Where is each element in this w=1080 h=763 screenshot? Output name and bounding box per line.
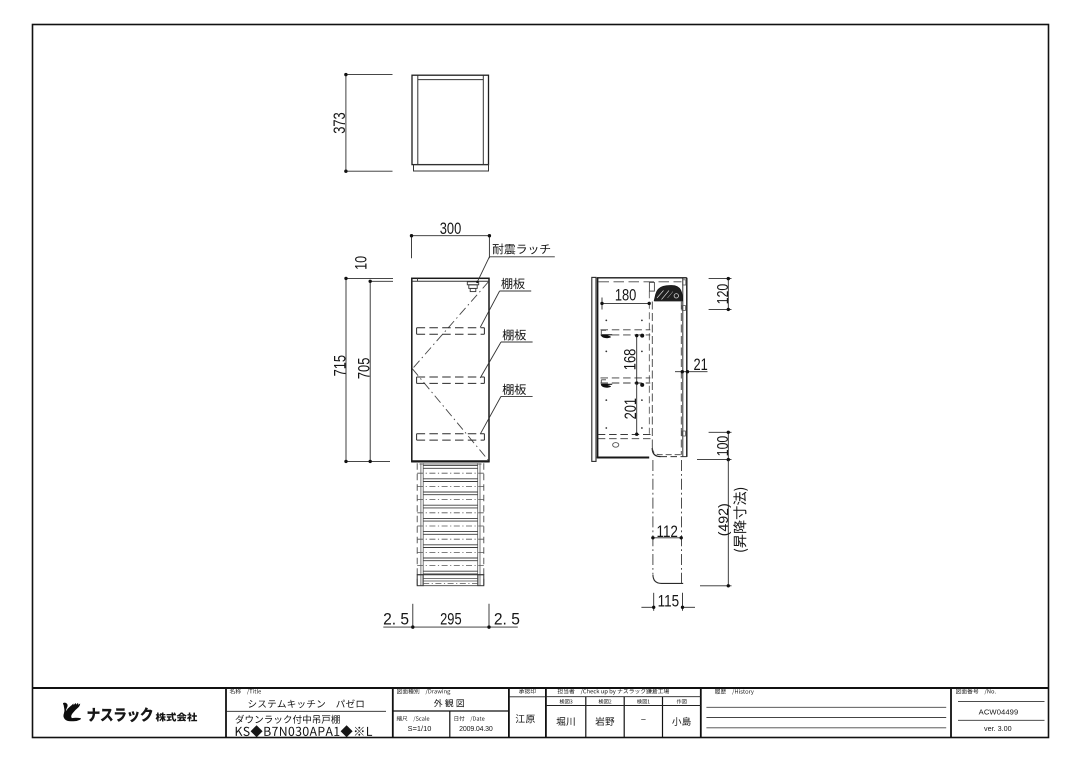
svg-text:S=1/10: S=1/10 bbox=[408, 724, 432, 733]
svg-text:180: 180 bbox=[615, 286, 637, 305]
svg-text:705: 705 bbox=[354, 358, 373, 380]
svg-text:(492): (492) bbox=[715, 503, 731, 536]
svg-text:21: 21 bbox=[694, 355, 708, 374]
svg-text:2. 5: 2. 5 bbox=[494, 609, 520, 628]
svg-text:300: 300 bbox=[440, 219, 462, 238]
svg-text:ver. 3.00: ver. 3.00 bbox=[984, 724, 1012, 733]
svg-text:201: 201 bbox=[621, 398, 640, 420]
svg-text:ACW04499: ACW04499 bbox=[979, 708, 1019, 717]
svg-text:100: 100 bbox=[715, 436, 732, 456]
svg-text:2. 5: 2. 5 bbox=[383, 609, 409, 628]
svg-text:115: 115 bbox=[658, 592, 680, 611]
svg-text:10: 10 bbox=[351, 256, 370, 270]
svg-text:295: 295 bbox=[440, 609, 462, 628]
svg-text:168: 168 bbox=[621, 349, 640, 371]
svg-text:373: 373 bbox=[330, 112, 349, 134]
svg-text:112: 112 bbox=[656, 522, 678, 541]
svg-text:120: 120 bbox=[715, 284, 732, 304]
svg-text:715: 715 bbox=[330, 355, 349, 377]
svg-text:2009.04.30: 2009.04.30 bbox=[459, 726, 493, 733]
